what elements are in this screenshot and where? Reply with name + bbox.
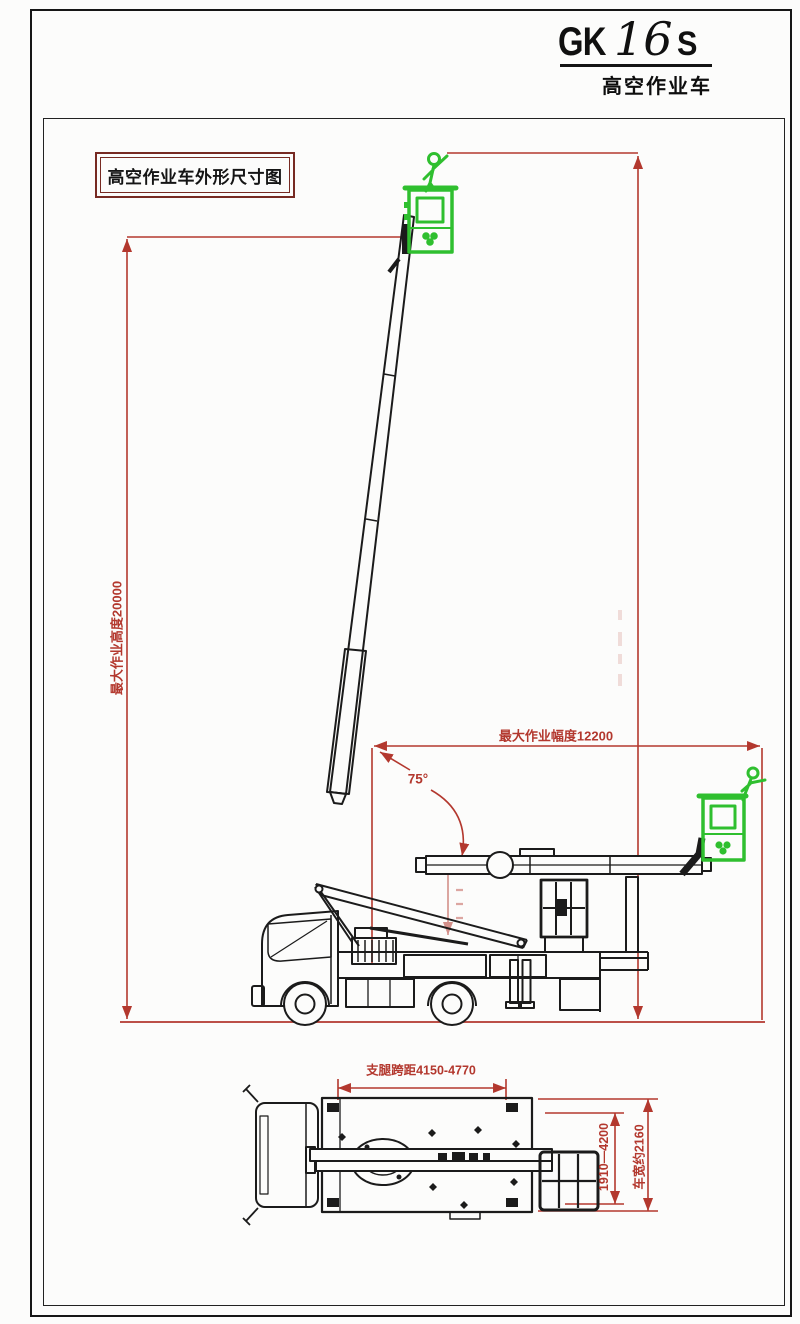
chassis-frame xyxy=(338,952,648,1012)
max-height-dimension-label: 最大作业高度20000 xyxy=(107,581,126,695)
rear-rack xyxy=(541,880,587,952)
drawing-sheet: GK 16 S 高空作业车 高空作业车外形尺寸图 xyxy=(0,0,800,1324)
angle-arc xyxy=(431,790,463,856)
truck-top-view xyxy=(243,1085,598,1225)
operator-figure-icon xyxy=(424,154,447,192)
rear-wheel xyxy=(431,983,473,1025)
extension-range-extension-lines xyxy=(545,1113,624,1204)
front-wheel xyxy=(284,983,326,1025)
dimension-lines xyxy=(120,153,765,1211)
boom-rest-post xyxy=(626,877,638,952)
work-platforms xyxy=(404,154,765,861)
cab-top-view xyxy=(256,1103,318,1207)
boom-angle-label: 75° xyxy=(408,772,428,787)
rear-outriggers xyxy=(506,960,534,1008)
clover-logo-icon xyxy=(422,232,438,246)
extension-range-label: 1910—4200 xyxy=(597,1123,611,1191)
lower-basket xyxy=(699,796,746,860)
angle-leader-line xyxy=(380,752,410,770)
outrigger-span-label: 支腿跨距4150-4770 xyxy=(366,1060,476,1079)
clover-logo-icon xyxy=(715,841,730,854)
main-boom-raised xyxy=(327,215,414,804)
outrigger-span-extension-lines xyxy=(338,1079,506,1100)
vehicle-width-label: 车宽约2160 xyxy=(629,1124,648,1189)
boom-linkage xyxy=(315,884,527,948)
max-outreach-dimension-label: 最大作业幅度12200 xyxy=(499,726,613,745)
telescopic-boom-horizontal xyxy=(416,849,711,878)
boom-top-view xyxy=(306,1147,552,1173)
truck-side-view xyxy=(252,215,711,1025)
boom-pulley xyxy=(487,852,513,878)
